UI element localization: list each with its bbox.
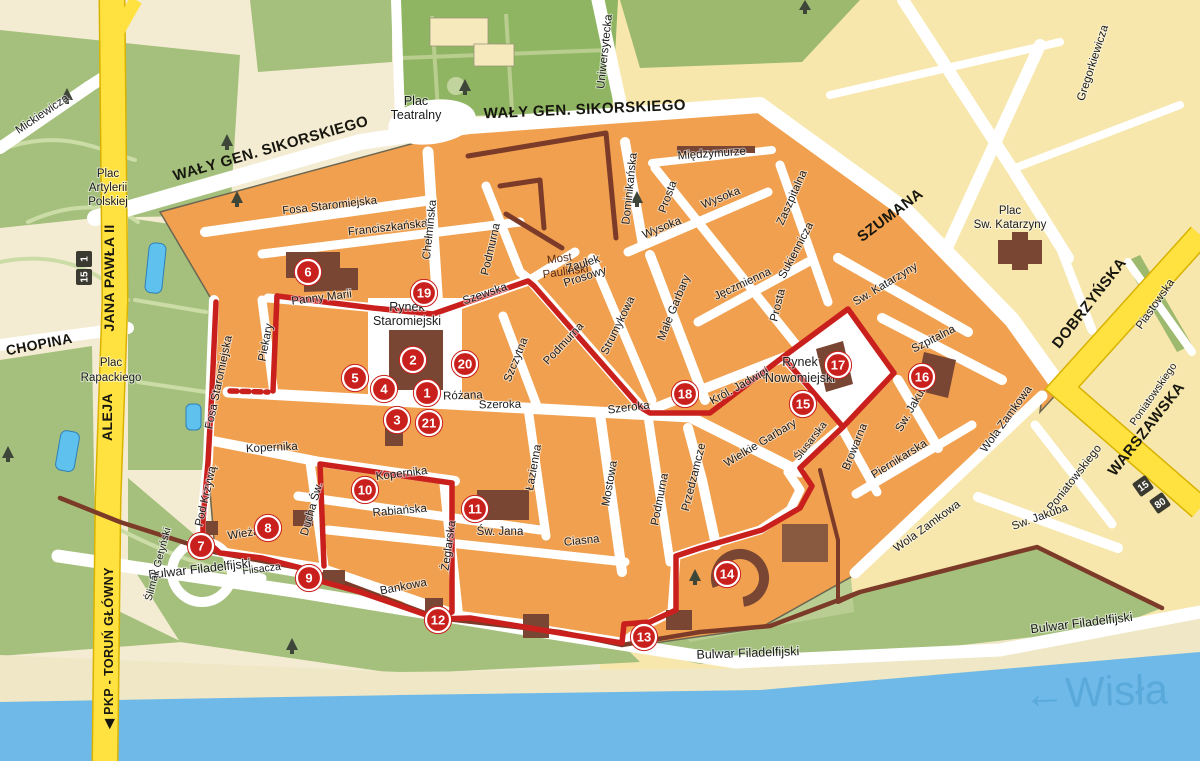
route-marker-19[interactable]: 19 <box>411 280 438 307</box>
svg-text:18: 18 <box>678 387 692 402</box>
svg-text:13: 13 <box>637 630 651 645</box>
road-label-pkp-torun-glowny: ◀ PKP - TORUŃ GŁÓWNY <box>101 567 116 730</box>
street-label-rozana: Różana <box>443 389 484 402</box>
svg-text:4: 4 <box>380 382 388 397</box>
university-building <box>430 18 488 46</box>
route-marker-8[interactable]: 8 <box>255 515 282 542</box>
place-label-plac-katarzyny-2: Sw. Katarzyny <box>974 219 1047 231</box>
route-marker-7[interactable]: 7 <box>188 533 215 560</box>
route-marker-17[interactable]: 17 <box>825 352 852 379</box>
route-marker-1[interactable]: 1 <box>414 380 441 407</box>
svg-text:15: 15 <box>796 397 810 412</box>
route-marker-11[interactable]: 11 <box>462 496 489 523</box>
svg-text:3: 3 <box>393 413 400 428</box>
place-label-plac-teatralny-2: Teatralny <box>391 108 442 122</box>
svg-text:21: 21 <box>422 416 436 431</box>
route-marker-4[interactable]: 4 <box>371 376 398 403</box>
svg-text:12: 12 <box>431 613 445 628</box>
svg-text:16: 16 <box>915 370 929 385</box>
park-north-strip <box>250 0 392 72</box>
svg-text:15: 15 <box>80 271 91 283</box>
route-marker-10[interactable]: 10 <box>352 477 379 504</box>
svg-text:14: 14 <box>720 567 735 582</box>
svg-text:10: 10 <box>358 483 372 498</box>
river-label-wisla: ←Wisła <box>1022 665 1169 717</box>
svg-text:11: 11 <box>468 502 482 517</box>
street-label-sw-jana: Św. Jana <box>477 525 524 538</box>
route-marker-18[interactable]: 18 <box>672 381 699 408</box>
route-marker-2[interactable]: 2 <box>400 347 427 374</box>
route-marker-14[interactable]: 14 <box>714 561 741 588</box>
street-label-szeroka-w: Szeroka <box>479 399 522 412</box>
svg-text:1: 1 <box>80 256 91 262</box>
road-label-jana-pawla: JANA PAWŁA II <box>101 224 117 331</box>
road-shield-15-west: 15 <box>76 269 92 285</box>
place-label-rynek-staromiejski-2: Staromiejski <box>373 314 441 328</box>
route-marker-21[interactable]: 21 <box>416 410 443 437</box>
torun-city-map: Mickiewicza WAŁY GEN. SIKORSKIEGO WAŁY G… <box>0 0 1200 761</box>
svg-text:1: 1 <box>423 386 430 401</box>
place-label-plac-rapackiego-1: Plac <box>100 357 123 369</box>
place-label-plac-katarzyny-1: Plac <box>999 205 1022 217</box>
road-label-aleja: ALEJA <box>99 393 115 441</box>
route-marker-3[interactable]: 3 <box>384 407 411 434</box>
svg-text:19: 19 <box>417 286 431 301</box>
svg-text:5: 5 <box>351 371 358 386</box>
map-canvas: Mickiewicza WAŁY GEN. SIKORSKIEGO WAŁY G… <box>0 0 1200 761</box>
svg-text:6: 6 <box>304 265 311 280</box>
route-dashed-link <box>230 391 268 392</box>
svg-text:2: 2 <box>409 353 416 368</box>
route-marker-6[interactable]: 6 <box>295 259 322 286</box>
leaning-tower <box>206 521 218 535</box>
place-label-plac-artylerii-1: Plac <box>97 168 120 180</box>
university-building <box>474 44 514 66</box>
svg-text:17: 17 <box>831 358 845 373</box>
route-marker-16[interactable]: 16 <box>909 364 936 391</box>
place-label-plac-teatralny-1: Plac <box>404 94 428 108</box>
place-label-plac-rapackiego-2: Rapackiego <box>81 372 142 384</box>
route-marker-13[interactable]: 13 <box>631 624 658 651</box>
svg-text:8: 8 <box>264 521 271 536</box>
svg-text:20: 20 <box>458 357 472 372</box>
place-label-plac-artylerii-3: Polskiej <box>88 196 128 208</box>
route-marker-12[interactable]: 12 <box>425 607 452 634</box>
route-marker-20[interactable]: 20 <box>452 351 479 378</box>
route-marker-9[interactable]: 9 <box>296 565 323 592</box>
svg-text:7: 7 <box>197 539 204 554</box>
svg-text:9: 9 <box>305 571 312 586</box>
place-label-rynek-nowomiejski-2: Nowomiejski <box>765 371 835 385</box>
place-label-rynek-nowomiejski-1: Rynek <box>782 355 818 369</box>
route-marker-15[interactable]: 15 <box>790 391 817 418</box>
route-marker-5[interactable]: 5 <box>342 365 369 392</box>
road-shield-1: 1 <box>76 251 92 267</box>
place-label-plac-artylerii-2: Artylerii <box>89 182 127 194</box>
